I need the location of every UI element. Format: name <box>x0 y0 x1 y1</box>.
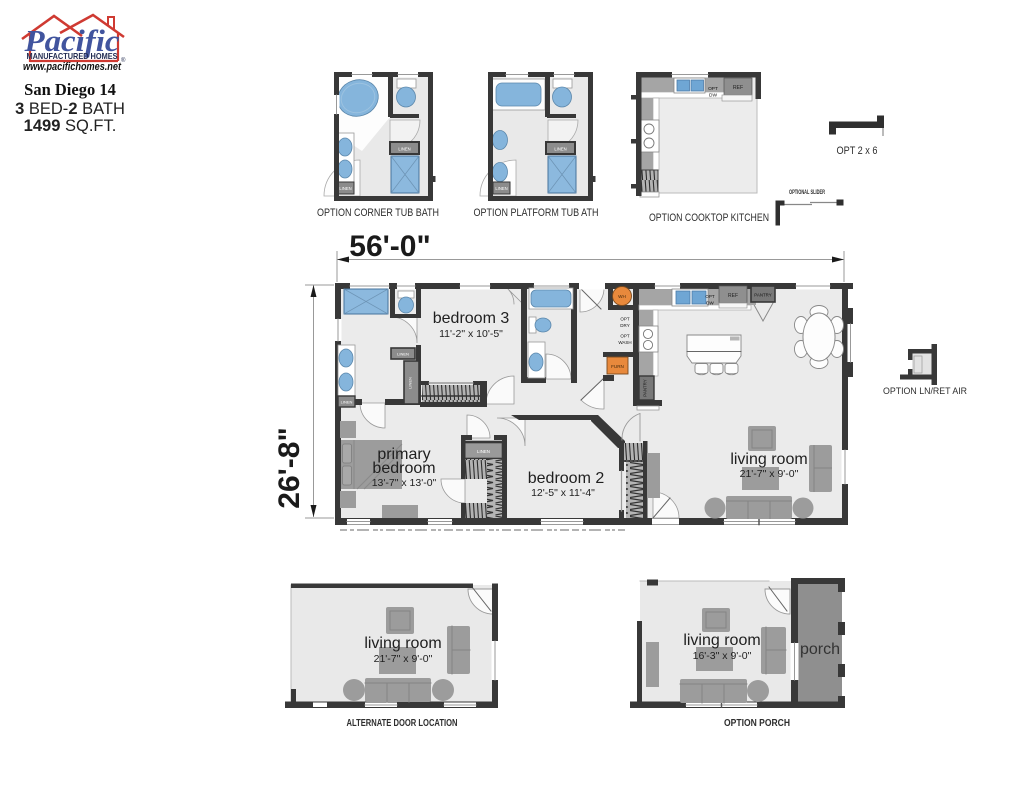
svg-text:®: ® <box>121 57 126 64</box>
svg-text:LINEN: LINEN <box>339 186 351 191</box>
svg-text:REF: REF <box>733 85 743 91</box>
svg-text:PANTRY: PANTRY <box>754 293 771 298</box>
svg-text:16'-3" x 9'-0": 16'-3" x 9'-0" <box>693 650 752 662</box>
svg-text:bedroom 3: bedroom 3 <box>433 310 510 327</box>
svg-text:OPT: OPT <box>620 317 630 322</box>
svg-text:LINEN: LINEN <box>398 147 410 152</box>
svg-text:OPTION COOKTOP KITCHEN: OPTION COOKTOP KITCHEN <box>649 212 769 224</box>
svg-text:21'-7" x 9'-0": 21'-7" x 9'-0" <box>374 653 433 665</box>
svg-text:San Diego 14: San Diego 14 <box>24 80 116 99</box>
svg-text:13'-7" x 13'-0": 13'-7" x 13'-0" <box>372 477 437 489</box>
svg-text:OPT: OPT <box>708 86 718 92</box>
svg-text:LINEN: LINEN <box>495 186 507 191</box>
svg-text:bedroom: bedroom <box>372 460 435 477</box>
svg-text:OPT: OPT <box>705 294 715 299</box>
svg-text:LINEN: LINEN <box>554 147 566 152</box>
svg-text:56'-0": 56'-0" <box>349 230 430 263</box>
svg-text:1499 SQ.FT.: 1499 SQ.FT. <box>24 117 117 135</box>
svg-text:FURN: FURN <box>611 364 624 369</box>
svg-text:LINEN: LINEN <box>341 400 353 405</box>
svg-text:REF: REF <box>728 293 738 299</box>
svg-text:OPT 2 x 6: OPT 2 x 6 <box>837 145 878 157</box>
svg-text:26'-8": 26'-8" <box>273 427 306 508</box>
svg-text:LINEN: LINEN <box>408 377 413 389</box>
svg-text:PANTRY: PANTRY <box>643 379 648 396</box>
svg-text:11'-2" x 10'-5": 11'-2" x 10'-5" <box>439 328 503 340</box>
svg-text:OPT: OPT <box>620 334 630 339</box>
svg-text:WASH: WASH <box>618 340 631 345</box>
svg-text:ALTERNATE DOOR LOCATION: ALTERNATE DOOR LOCATION <box>347 717 458 729</box>
svg-text:OPTION PLATFORM TUB ATH: OPTION PLATFORM TUB ATH <box>474 207 599 219</box>
svg-text:12'-5" x 11'-4": 12'-5" x 11'-4" <box>531 487 595 499</box>
svg-text:www.pacifichomes.net: www.pacifichomes.net <box>23 61 122 73</box>
svg-text:WH: WH <box>618 294 626 299</box>
svg-text:OPTIONAL SLIDER: OPTIONAL SLIDER <box>789 190 825 196</box>
svg-text:21'-7" x 9'-0": 21'-7" x 9'-0" <box>740 468 799 480</box>
svg-text:living room: living room <box>364 635 441 652</box>
svg-text:DW: DW <box>706 301 714 306</box>
svg-text:living room: living room <box>730 451 807 468</box>
svg-text:living room: living room <box>683 632 760 649</box>
svg-text:3 BED-2 BATH: 3 BED-2 BATH <box>15 100 125 118</box>
svg-text:LINEN: LINEN <box>397 352 409 357</box>
svg-text:MANUFACTURED HOMES: MANUFACTURED HOMES <box>27 51 118 61</box>
svg-text:porch: porch <box>800 641 840 658</box>
svg-text:bedroom 2: bedroom 2 <box>528 470 605 487</box>
svg-text:OPTION LN/RET AIR: OPTION LN/RET AIR <box>883 386 967 396</box>
svg-text:OPTION PORCH: OPTION PORCH <box>724 717 790 729</box>
svg-text:DW: DW <box>709 93 717 99</box>
svg-text:DRY: DRY <box>620 323 629 328</box>
svg-text:OPTION CORNER TUB BATH: OPTION CORNER TUB BATH <box>317 207 439 219</box>
svg-text:LINEN: LINEN <box>477 449 490 454</box>
